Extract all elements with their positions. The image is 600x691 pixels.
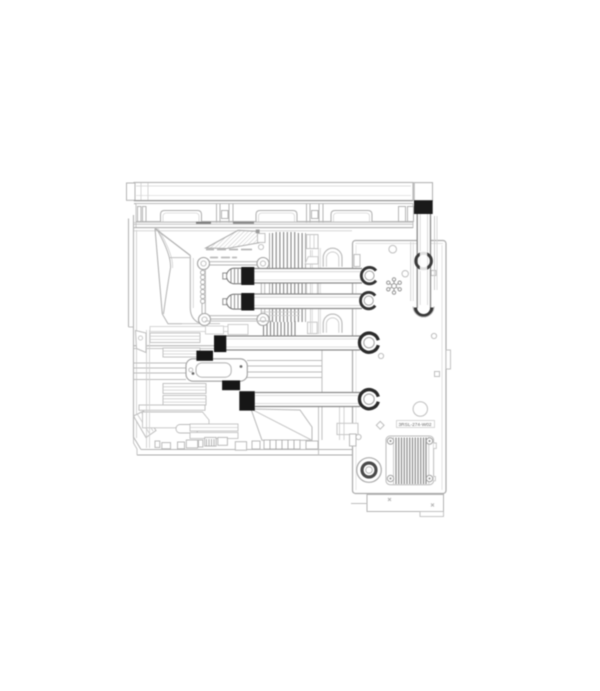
svg-text:3RSL-274-W02: 3RSL-274-W02 (399, 422, 432, 428)
